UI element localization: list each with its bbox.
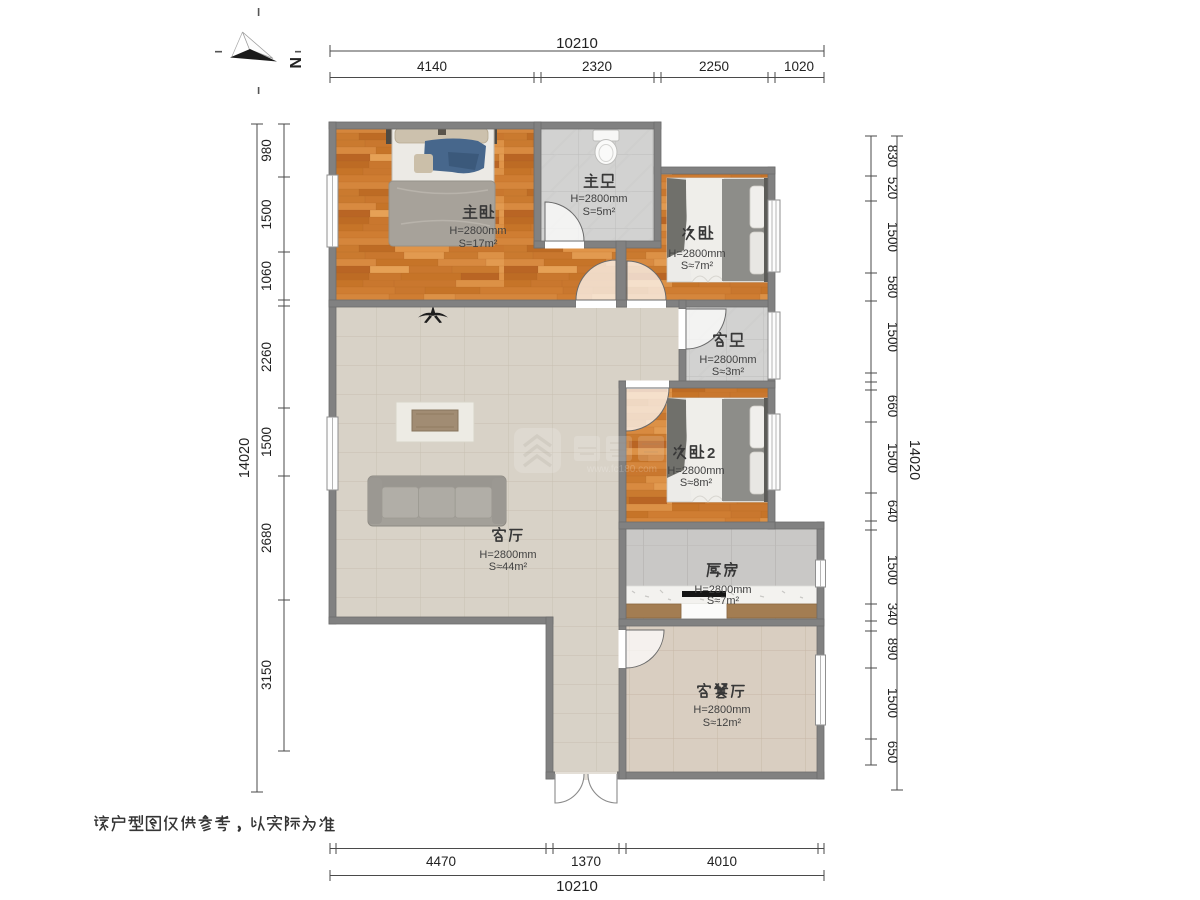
svg-text:1500: 1500 [259, 199, 274, 229]
svg-text:1500: 1500 [885, 322, 900, 352]
svg-text:H=2800mm: H=2800mm [693, 704, 750, 716]
svg-text:980: 980 [259, 139, 274, 162]
svg-text:580: 580 [885, 276, 900, 299]
svg-text:2250: 2250 [699, 59, 729, 74]
svg-text:1500: 1500 [885, 555, 900, 585]
svg-text:H=2800mm: H=2800mm [699, 354, 756, 366]
svg-text:H=2800mm: H=2800mm [667, 465, 724, 477]
svg-text:3150: 3150 [259, 660, 274, 690]
svg-text:640: 640 [885, 500, 900, 523]
svg-text:4470: 4470 [426, 854, 456, 869]
svg-text:S≈7m²: S≈7m² [707, 595, 740, 607]
svg-text:2: 2 [707, 445, 715, 462]
svg-text:1060: 1060 [259, 261, 274, 291]
svg-text:www.fc180.com: www.fc180.com [586, 464, 657, 475]
svg-text:2680: 2680 [259, 523, 274, 553]
svg-text:650: 650 [885, 741, 900, 764]
svg-text:H=2800mm: H=2800mm [570, 193, 627, 205]
svg-text:H=2800mm: H=2800mm [668, 248, 725, 260]
svg-text:S≈44m²: S≈44m² [489, 561, 528, 573]
svg-text:1500: 1500 [259, 427, 274, 457]
svg-text:S≈12m²: S≈12m² [703, 717, 742, 729]
svg-text:S=5m²: S=5m² [583, 206, 616, 218]
svg-text:H=2800mm: H=2800mm [479, 549, 536, 561]
svg-text:4140: 4140 [417, 59, 447, 74]
svg-text:14020: 14020 [237, 438, 253, 478]
svg-text:340: 340 [885, 603, 900, 626]
svg-text:14020: 14020 [906, 440, 922, 480]
svg-text:520: 520 [885, 177, 900, 200]
svg-text:890: 890 [885, 638, 900, 661]
svg-text:1370: 1370 [571, 854, 601, 869]
svg-text:H=2800mm: H=2800mm [449, 225, 506, 237]
svg-text:1020: 1020 [784, 59, 814, 74]
svg-text:S≈7m²: S≈7m² [681, 260, 714, 272]
svg-text:S≈3m²: S≈3m² [712, 366, 745, 378]
svg-text:4010: 4010 [707, 854, 737, 869]
svg-text:1500: 1500 [885, 443, 900, 473]
svg-text:N: N [286, 57, 303, 69]
svg-text:S=17m²: S=17m² [459, 238, 498, 250]
svg-text:10210: 10210 [556, 35, 598, 52]
svg-text:S≈8m²: S≈8m² [680, 477, 713, 489]
svg-text:1500: 1500 [885, 222, 900, 252]
svg-text:2320: 2320 [582, 59, 612, 74]
svg-text:830: 830 [885, 145, 900, 168]
svg-text:10210: 10210 [556, 878, 598, 895]
svg-text:1500: 1500 [885, 688, 900, 718]
svg-text:2260: 2260 [259, 342, 274, 372]
svg-text:660: 660 [885, 395, 900, 418]
